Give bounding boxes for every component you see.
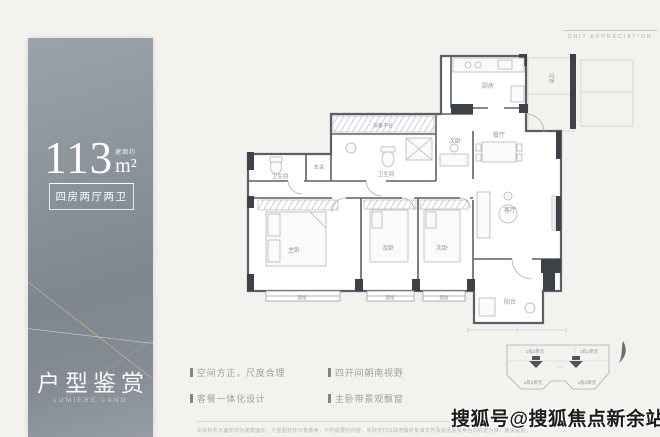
room-label-corridor: 过道 [548,73,555,83]
dimension-line [468,327,566,333]
unit-label: 1栋4单元 [578,379,597,386]
room-label-foyer: 玄关 [313,163,325,171]
bullet-icon [328,394,331,403]
feature-text: 四开间朝南视野 [335,366,404,379]
room-label-equipment: 设备平台 [373,122,393,129]
room-label-master: 主卧 [288,246,300,254]
feature-item: 空间方正，尺度合理 [190,366,328,379]
feature-item: 四开间朝南视野 [328,366,486,379]
bay-window-label: 飘窗 [440,294,449,301]
room-label-bedroom2: 次卧 [382,244,394,252]
floorplan-poster: 113建面约m² 四房两厅两卫 户型鉴赏 LUMIERE LAND UNIT A… [0,0,660,437]
room-label-living: 客厅 [504,206,516,214]
area-unit: m² [115,157,137,175]
layout-spec-box: 四房两厅两卫 [49,183,134,210]
unit-label: 1栋3单元 [524,379,543,386]
room-label-balcony: 阳台 [504,298,516,306]
bay-window-label: 飘窗 [386,294,395,301]
feature-text: 主卧带景观飘窗 [335,392,404,405]
watermark-text: 搜狐号@搜狐焦点新余站 [451,404,660,431]
area-figure: 113建面约m² [28,136,153,181]
unit-appreciation-caption: UNIT APPRECIATION [563,30,657,40]
room-label-bedroom3: 次卧 [436,244,448,252]
bullet-icon [328,368,331,377]
feature-item: 客餐一体化设计 [190,392,328,405]
bay-window-label: 飘窗 [298,294,307,301]
layout-spec-text: 四房两厅两卫 [56,191,128,203]
north-arrow-icon [619,341,626,363]
bay-windows [266,291,465,301]
area-number: 113 [44,133,113,183]
unit-label: 1栋1单元 [580,348,599,355]
floorplan-drawing: 设备平台 卫生间 卫生间 玄关 厨房 次卧 餐厅 客厅 阳台 主卧 次卧 次卧 … [236,46,644,342]
unit-label: 1栋2单元 [526,348,545,355]
feature-text: 客餐一体化设计 [197,392,266,405]
panel-subtitle-en: LUMIERE LAND [28,398,153,404]
building-keyplan: 1栋2单元 1栋1单元 1栋3单元 1栋4单元 [497,337,635,409]
room-label-bath-top: 卫生间 [378,170,395,178]
feature-text: 空间方正，尺度合理 [197,366,285,379]
room-label-bath-left: 卫生间 [272,172,289,180]
room-label-dining: 餐厅 [493,131,505,139]
room-label-bedroom-top: 次卧 [449,137,461,145]
panel-title: 户型鉴赏 [28,364,153,398]
feature-list: 空间方正，尺度合理 四开间朝南视野 客餐一体化设计 主卧带景观飘窗 [190,366,486,405]
unit-position-markers [529,356,583,368]
common-area-lines [528,58,633,131]
bullet-icon [190,368,193,377]
bullet-icon [190,394,193,403]
room-label-kitchen: 厨房 [482,82,494,90]
left-info-panel: 113建面约m² 四房两厅两卫 户型鉴赏 LUMIERE LAND [28,38,153,437]
